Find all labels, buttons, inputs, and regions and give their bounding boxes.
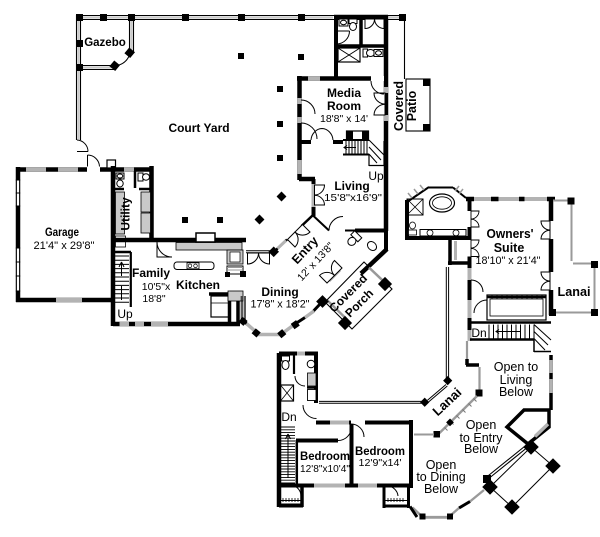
svg-text:Family: Family: [132, 266, 170, 280]
svg-text:Gazebo: Gazebo: [84, 37, 126, 49]
svg-text:18'8": 18'8": [142, 293, 166, 305]
svg-text:Below: Below: [424, 482, 459, 496]
svg-text:Below: Below: [464, 442, 499, 456]
svg-text:Suite: Suite: [494, 241, 525, 255]
svg-text:21'4" x 29'8": 21'4" x 29'8": [34, 240, 95, 252]
svg-text:15'8"x16'9": 15'8"x16'9": [324, 192, 382, 204]
svg-text:Bedroom: Bedroom: [300, 449, 350, 463]
svg-text:18'10" x 21'4": 18'10" x 21'4": [476, 255, 541, 267]
svg-text:Bedroom: Bedroom: [355, 444, 405, 458]
svg-text:Utility: Utility: [119, 197, 133, 231]
svg-text:Open to: Open to: [494, 360, 539, 374]
svg-text:10'5"x: 10'5"x: [142, 281, 171, 293]
svg-text:Patio: Patio: [405, 90, 419, 121]
svg-text:Media: Media: [327, 86, 361, 100]
svg-text:Court Yard: Court Yard: [168, 121, 229, 135]
svg-text:Dining: Dining: [261, 285, 298, 299]
svg-text:Open: Open: [466, 418, 497, 432]
svg-text:Dn: Dn: [281, 410, 296, 424]
svg-text:Room: Room: [327, 99, 361, 113]
svg-text:Living: Living: [334, 179, 369, 193]
svg-text:18'8" x 14': 18'8" x 14': [320, 113, 368, 125]
svg-text:Owners': Owners': [487, 227, 534, 241]
svg-text:Below: Below: [499, 385, 534, 399]
svg-text:Up: Up: [117, 307, 133, 321]
svg-text:Lanai: Lanai: [558, 284, 591, 299]
svg-text:Covered: Covered: [392, 81, 406, 131]
svg-text:Garage: Garage: [45, 225, 79, 239]
svg-text:Kitchen: Kitchen: [176, 278, 220, 292]
svg-text:Dn: Dn: [471, 326, 486, 340]
svg-text:17'8" x 18'2": 17'8" x 18'2": [251, 299, 310, 311]
svg-text:12'9"x14': 12'9"x14': [359, 457, 402, 469]
svg-text:Up: Up: [368, 169, 384, 183]
svg-text:12'8"x10'4": 12'8"x10'4": [300, 463, 350, 475]
